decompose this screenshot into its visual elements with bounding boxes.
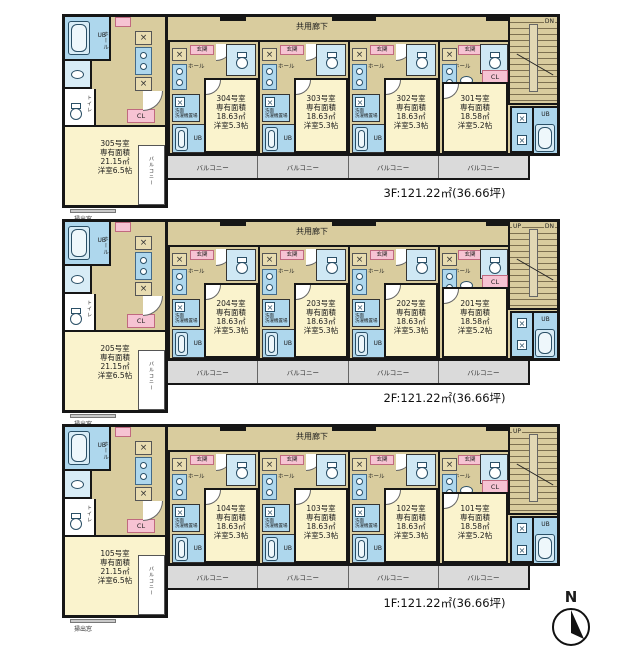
staircase: UP	[508, 427, 557, 515]
washer-label: 洗濯機置場	[355, 319, 378, 324]
unit-number: 204号室	[206, 299, 256, 308]
stove-icon	[135, 487, 152, 501]
door-arc-icon	[143, 501, 163, 521]
unit-area-caption: 専有面積	[444, 103, 506, 112]
toilet-room	[226, 454, 256, 486]
unit-number: 302号室	[386, 94, 436, 103]
washer-icon	[355, 97, 365, 107]
sink-icon	[71, 275, 84, 284]
unit-bath-room: UB	[534, 311, 560, 358]
toilet-room	[406, 454, 436, 486]
hall-label: ホール	[368, 62, 385, 70]
washroom: 洗面 洗濯機置場	[262, 299, 290, 327]
washroom: 洗面 洗濯機置場	[262, 94, 290, 122]
unit-number: 202号室	[386, 299, 436, 308]
sink-icon	[176, 489, 183, 496]
washbasin-room	[65, 61, 92, 89]
balcony-label: バルコニー	[348, 361, 438, 383]
sink-icon	[176, 284, 183, 291]
kitchen-sink	[172, 474, 187, 500]
main-room: 104号室 専有面積 18.63㎡ 洋室5.3帖	[204, 488, 258, 563]
hall-label: ホール	[278, 472, 295, 480]
unit-area: 18.63㎡	[296, 522, 346, 531]
washroom: 洗面 洗濯機置場	[352, 94, 380, 122]
toilet-room	[316, 44, 346, 76]
hall-label: ホール	[101, 31, 109, 51]
main-room: 101号室 専有面積 18.58㎡ 洋室5.2帖	[442, 492, 508, 563]
main-room: 203号室 専有面積 18.63㎡ 洋室5.3帖	[294, 283, 348, 358]
washer-label: 洗濯機置場	[355, 114, 378, 119]
ub-label: UB	[193, 340, 202, 347]
floor-summary: 1F:121.22㎡(36.66坪)	[342, 595, 547, 611]
entrance-label: 玄関	[280, 455, 304, 465]
toilet-room	[226, 44, 256, 76]
bathtub-icon	[535, 329, 555, 357]
toilet-icon	[325, 52, 337, 68]
toilet-label: トイレ	[86, 95, 93, 113]
hall-label: ホール	[188, 267, 205, 275]
unit-room-size: 洋室5.3帖	[296, 531, 346, 540]
unit-area-caption: 専有面積	[206, 103, 256, 112]
unit-bath-room: UB	[262, 124, 296, 153]
main-room: 204号室 専有面積 18.63㎡ 洋室5.3帖	[204, 283, 258, 358]
unit-x05: UB トイレ ホール CL 205号室 専有面積	[62, 219, 168, 413]
kitchen-sink	[262, 64, 277, 90]
washer-room	[510, 106, 534, 153]
entrance-label: 玄関	[370, 455, 394, 465]
window-eave	[70, 414, 116, 418]
balcony-label: バルコニー	[168, 361, 257, 383]
balcony-vertical: バルコニー	[138, 555, 165, 615]
unit-x01: 玄関 ホール CL 201号室 専有面積 18.58㎡ 洋室5.2帖	[438, 245, 508, 358]
balcony-vertical: バルコニー	[138, 145, 165, 205]
main-room: 202号室 専有面積 18.63㎡ 洋室5.3帖	[384, 283, 438, 358]
washroom: 洗面 洗濯機置場	[172, 299, 200, 327]
stove-icon	[442, 458, 457, 471]
unit-area: 18.58㎡	[444, 112, 506, 121]
unit-bath-room: UB	[262, 534, 296, 563]
stove-icon	[135, 282, 152, 296]
balcony-label: バルコニー	[438, 566, 528, 588]
ub-label: UB	[373, 135, 382, 142]
north-compass-icon	[551, 607, 591, 647]
hall-label: ホール	[278, 62, 295, 70]
balcony-label: バルコニー	[168, 156, 257, 178]
main-room: 302号室 専有面積 18.63㎡ 洋室5.3帖	[384, 78, 438, 153]
shoe-cabinet	[115, 427, 131, 437]
unit-x01: 玄関 ホール CL 301号室 専有面積 18.58㎡ 洋室5.2帖	[438, 40, 508, 153]
sink-icon	[356, 79, 363, 86]
kitchen-sink	[172, 64, 187, 90]
washer-icon	[175, 97, 185, 107]
washer-icon	[517, 318, 527, 328]
balcony-label: バルコニー	[438, 361, 528, 383]
hall-label: ホール	[278, 267, 295, 275]
ub-label: UB	[193, 545, 202, 552]
sink-icon	[266, 489, 273, 496]
corridor-label: 共用廊下	[242, 21, 382, 32]
corridor-label: 共用廊下	[242, 226, 382, 237]
unit-room-size: 洋室5.2帖	[444, 121, 506, 130]
toilet-room	[316, 454, 346, 486]
unit-bath-room: UB	[534, 106, 560, 153]
sink-icon	[356, 284, 363, 291]
washer-label: 洗濯機置場	[175, 114, 198, 119]
toilet-icon	[325, 257, 337, 273]
sink-icon	[266, 68, 273, 75]
bathtub-icon	[68, 226, 90, 260]
unit-room-size: 洋室5.3帖	[386, 531, 436, 540]
unit-x02: 玄関 ホール 洗面 洗濯機置場 UB	[348, 450, 438, 563]
sink-icon	[356, 68, 363, 75]
unit-number: 102号室	[386, 504, 436, 513]
toilet-icon	[235, 462, 247, 478]
kitchen-sink	[135, 457, 152, 485]
washer-icon	[355, 507, 365, 517]
sink-icon	[140, 52, 147, 59]
entrance-label: 玄関	[370, 45, 394, 55]
toilet-label: トイレ	[86, 505, 93, 523]
toilet-label: トイレ	[86, 300, 93, 318]
unit-area: 18.63㎡	[386, 317, 436, 326]
hall-label: ホール	[101, 441, 109, 461]
stove-icon	[352, 253, 367, 266]
stove-icon	[442, 253, 457, 266]
washer-icon	[517, 113, 527, 123]
toilet-icon	[235, 52, 247, 68]
wall-segment	[220, 219, 246, 226]
bathtub-icon	[535, 534, 555, 562]
entrance-label: 玄関	[458, 250, 482, 260]
stove-icon	[262, 458, 277, 471]
washroom: 洗面 洗濯機置場	[352, 504, 380, 532]
stair-divider	[529, 24, 538, 92]
balcony-label: バルコニー	[148, 361, 155, 391]
wall-segment	[332, 14, 376, 21]
sink-icon	[266, 284, 273, 291]
stair-up-label: UP	[512, 223, 522, 230]
sink-icon	[356, 273, 363, 280]
bathtub-icon	[355, 127, 368, 151]
balcony-strip: バルコニー バルコニー バルコニー バルコニー	[166, 566, 530, 590]
toilet-room	[406, 249, 436, 281]
unit-room-size: 洋室5.3帖	[206, 531, 256, 540]
unit-area: 18.63㎡	[206, 522, 256, 531]
window-note: 掃出窓	[74, 624, 92, 633]
unit-bath-room: UB	[352, 329, 386, 358]
toilet-icon	[415, 52, 427, 68]
washer-room	[510, 516, 534, 563]
unit-x03: 玄関 ホール 洗面 洗濯機置場 UB	[258, 450, 348, 563]
stair-down-label: DN	[544, 18, 555, 25]
stove-icon	[172, 253, 187, 266]
wall-segment	[486, 14, 508, 21]
kitchen-sink	[135, 252, 152, 280]
washer-label: 洗濯機置場	[265, 114, 288, 119]
unit-bath-room: UB	[534, 516, 560, 563]
balcony-label: バルコニー	[438, 156, 528, 178]
entrance-label: 玄関	[190, 455, 214, 465]
balcony-label: バルコニー	[348, 156, 438, 178]
stove-icon	[262, 48, 277, 61]
hall-label: ホール	[368, 472, 385, 480]
sink-icon	[446, 478, 453, 485]
toilet-room	[226, 249, 256, 281]
bathtub-icon	[265, 127, 278, 151]
toilet-icon	[415, 462, 427, 478]
washer-icon	[265, 97, 275, 107]
sink-icon	[266, 79, 273, 86]
wall-segment	[220, 14, 246, 21]
toilet-icon	[235, 257, 247, 273]
unit-room-size: 洋室5.3帖	[206, 326, 256, 335]
stove-icon	[172, 48, 187, 61]
unit-area-caption: 専有面積	[296, 308, 346, 317]
main-room: 301号室 専有面積 18.58㎡ 洋室5.2帖	[442, 82, 508, 153]
balcony-label: バルコニー	[257, 156, 347, 178]
washroom: 洗面 洗濯機置場	[172, 504, 200, 532]
toilet-room	[316, 249, 346, 281]
entrance-label: 玄関	[458, 45, 482, 55]
washer-icon	[265, 507, 275, 517]
door-arc-icon	[143, 91, 163, 111]
washer-label: 洗濯機置場	[175, 524, 198, 529]
ub-label: UB	[373, 545, 382, 552]
unit-area: 18.63㎡	[206, 317, 256, 326]
hall-label: ホール	[188, 62, 205, 70]
kitchen-sink	[352, 64, 367, 90]
north-label: N	[548, 588, 594, 606]
bathtub-icon	[265, 332, 278, 356]
balcony-label: バルコニー	[348, 566, 438, 588]
washer-room	[510, 311, 534, 358]
balcony-label: バルコニー	[148, 156, 155, 186]
bathtub-icon	[265, 537, 278, 561]
entrance-label: 玄関	[458, 455, 482, 465]
main-room: 304号室 専有面積 18.63㎡ 洋室5.3帖	[204, 78, 258, 153]
sink-icon	[176, 68, 183, 75]
sink-icon	[446, 273, 453, 280]
toilet-icon	[488, 52, 500, 68]
wall-segment	[486, 219, 508, 226]
main-room: 201号室 専有面積 18.58㎡ 洋室5.2帖	[442, 287, 508, 358]
unit-x05: UB トイレ ホール CL 105号室 専有面積	[62, 424, 168, 618]
sink-icon	[176, 273, 183, 280]
kitchen-sink	[172, 269, 187, 295]
unit-x02: 玄関 ホール 洗面 洗濯機置場 UB	[348, 40, 438, 153]
washroom: 洗面 洗濯機置場	[352, 299, 380, 327]
stove-icon	[135, 31, 152, 45]
unit-bath-room: UB	[172, 534, 206, 563]
unit-bath-room: UB	[172, 329, 206, 358]
bathtub-icon	[355, 332, 368, 356]
kitchen-sink	[262, 269, 277, 295]
balcony-strip: バルコニー バルコニー バルコニー バルコニー	[166, 156, 530, 180]
hall-label: ホール	[101, 236, 109, 256]
corridor-label: 共用廊下	[242, 431, 382, 442]
balcony-label: バルコニー	[168, 566, 257, 588]
balcony-strip: バルコニー バルコニー バルコニー バルコニー	[166, 361, 530, 385]
washer-icon	[517, 135, 527, 145]
shoe-cabinet	[115, 222, 131, 232]
staircase: UP DN	[508, 222, 557, 310]
sink-icon	[356, 478, 363, 485]
staircase: DN	[508, 17, 557, 105]
ub-label: UB	[283, 545, 292, 552]
stove-icon	[442, 48, 457, 61]
ub-label: UB	[283, 135, 292, 142]
unit-room-size: 洋室5.2帖	[444, 531, 506, 540]
sink-icon	[71, 480, 84, 489]
ub-label: UB	[534, 316, 557, 323]
sink-icon	[266, 478, 273, 485]
unit-area: 18.58㎡	[444, 317, 506, 326]
balcony-label: バルコニー	[148, 566, 155, 596]
unit-number: 304号室	[206, 94, 256, 103]
stove-icon	[352, 48, 367, 61]
unit-area-caption: 専有面積	[444, 513, 506, 522]
wall-segment	[220, 424, 246, 431]
main-room: 102号室 専有面積 18.63㎡ 洋室5.3帖	[384, 488, 438, 563]
toilet-icon	[69, 103, 81, 119]
unit-area-caption: 専有面積	[296, 103, 346, 112]
toilet-icon	[488, 462, 500, 478]
unit-area-caption: 専有面積	[296, 513, 346, 522]
wall-segment	[332, 219, 376, 226]
stair-divider	[529, 229, 538, 297]
unit-x03: 玄関 ホール 洗面 洗濯機置場 UB	[258, 245, 348, 358]
sink-icon	[176, 79, 183, 86]
floor-plan-1F: 共用廊下 UP UB トイレ ホール	[62, 424, 567, 631]
unit-area: 18.58㎡	[444, 522, 506, 531]
floor-summary: 3F:121.22㎡(36.66坪)	[342, 185, 547, 201]
sink-icon	[140, 268, 147, 275]
unit-area-caption: 専有面積	[206, 308, 256, 317]
entrance-label: 玄関	[190, 45, 214, 55]
washer-icon	[265, 302, 275, 312]
toilet-icon	[69, 308, 81, 324]
toilet-room	[406, 44, 436, 76]
unit-room-size: 洋室5.3帖	[296, 326, 346, 335]
washer-label: 洗濯機置場	[175, 319, 198, 324]
stair-up-label: UP	[512, 428, 522, 435]
unit-number: 303号室	[296, 94, 346, 103]
sink-icon	[446, 68, 453, 75]
unit-x02: 玄関 ホール 洗面 洗濯機置場 UB	[348, 245, 438, 358]
unit-area: 18.63㎡	[386, 112, 436, 121]
floor-summary: 2F:121.22㎡(36.66坪)	[342, 390, 547, 406]
unit-room-size: 洋室5.3帖	[386, 326, 436, 335]
stove-icon	[135, 236, 152, 250]
washbasin-room	[65, 266, 92, 294]
unit-bath-room: UB	[352, 124, 386, 153]
closet-label: CL	[127, 314, 155, 328]
window-eave	[70, 619, 116, 623]
washer-icon	[175, 507, 185, 517]
stair-down-label: DN	[544, 223, 555, 230]
wall-segment	[332, 424, 376, 431]
unit-x01: 玄関 ホール CL 101号室 専有面積 18.58㎡ 洋室5.2帖	[438, 450, 508, 563]
sink-icon	[140, 63, 147, 70]
shoe-cabinet	[115, 17, 131, 27]
ub-label: UB	[283, 340, 292, 347]
kitchen-sink	[352, 269, 367, 295]
unit-area: 18.63㎡	[386, 522, 436, 531]
entrance-label: 玄関	[280, 250, 304, 260]
bathtub-icon	[535, 124, 555, 152]
toilet-icon	[488, 257, 500, 273]
unit-bath-room: UB	[352, 534, 386, 563]
ub-label: UB	[534, 111, 557, 118]
stove-icon	[352, 458, 367, 471]
unit-x05: UB トイレ ホール CL 305号室 専有面積	[62, 14, 168, 208]
sink-icon	[140, 257, 147, 264]
main-room: 103号室 専有面積 18.63㎡ 洋室5.3帖	[294, 488, 348, 563]
unit-bath-room: UB	[262, 329, 296, 358]
stove-icon	[135, 77, 152, 91]
washroom: 洗面 洗濯機置場	[262, 504, 290, 532]
washer-label: 洗濯機置場	[265, 319, 288, 324]
floor-plans-container: 共用廊下 DN UB トイレ ホール	[0, 0, 640, 663]
window-eave	[70, 209, 116, 213]
floor-plan-3F: 共用廊下 DN UB トイレ ホール	[62, 14, 567, 221]
stove-icon	[135, 441, 152, 455]
ub-label: UB	[193, 135, 202, 142]
unit-room-size: 洋室5.3帖	[206, 121, 256, 130]
unit-room-size: 洋室5.2帖	[444, 326, 506, 335]
washer-icon	[517, 340, 527, 350]
balcony-label: バルコニー	[257, 566, 347, 588]
entrance-label: 玄関	[370, 250, 394, 260]
stair-divider	[529, 434, 538, 502]
main-room: 303号室 専有面積 18.63㎡ 洋室5.3帖	[294, 78, 348, 153]
washbasin-room	[65, 471, 92, 499]
washer-icon	[517, 545, 527, 555]
unit-room-size: 洋室5.3帖	[296, 121, 346, 130]
unit-x04: 玄関 ホール 洗面 洗濯機置場 UB	[168, 245, 258, 358]
kitchen-sink	[262, 474, 277, 500]
unit-area: 18.63㎡	[296, 112, 346, 121]
sink-icon	[140, 462, 147, 469]
unit-number: 104号室	[206, 504, 256, 513]
floor-plan-2F: 共用廊下 UP DN UB トイレ ホール	[62, 219, 567, 426]
wall-segment	[486, 424, 508, 431]
washer-label: 洗濯機置場	[355, 524, 378, 529]
bathtub-icon	[175, 537, 188, 561]
unit-area-caption: 専有面積	[386, 513, 436, 522]
unit-x04: 玄関 ホール 洗面 洗濯機置場 UB	[168, 40, 258, 153]
compass: N	[548, 588, 594, 647]
unit-area-caption: 専有面積	[444, 308, 506, 317]
washer-label: 洗濯機置場	[265, 524, 288, 529]
closet-label: CL	[127, 109, 155, 123]
sink-icon	[356, 489, 363, 496]
unit-x03: 玄関 ホール 洗面 洗濯機置場 UB	[258, 40, 348, 153]
bathtub-icon	[355, 537, 368, 561]
toilet-icon	[415, 257, 427, 273]
stove-icon	[262, 253, 277, 266]
sink-icon	[71, 70, 84, 79]
ub-label: UB	[373, 340, 382, 347]
bathtub-icon	[68, 21, 90, 55]
entrance-label: 玄関	[280, 45, 304, 55]
entrance-label: 玄関	[190, 250, 214, 260]
toilet-icon	[325, 462, 337, 478]
unit-number: 203号室	[296, 299, 346, 308]
bathtub-icon	[175, 127, 188, 151]
unit-area-caption: 専有面積	[206, 513, 256, 522]
sink-icon	[266, 273, 273, 280]
